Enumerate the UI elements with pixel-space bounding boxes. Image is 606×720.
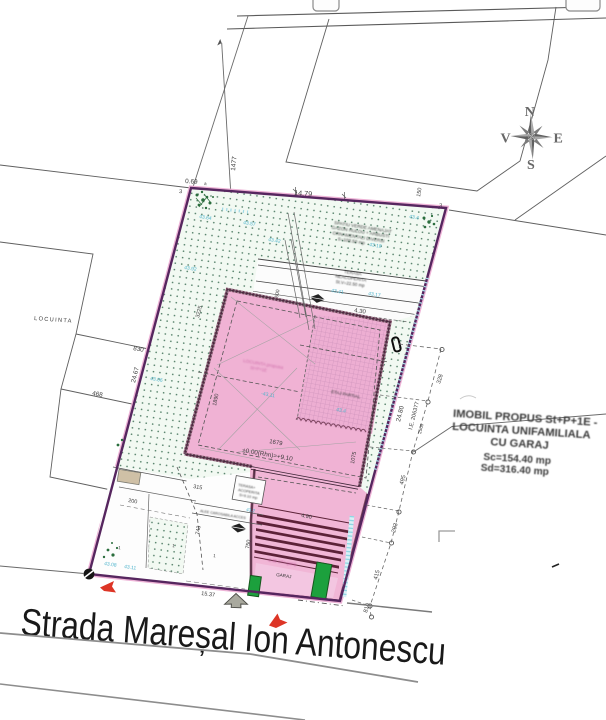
svg-text:a: a xyxy=(204,181,207,186)
svg-text:468: 468 xyxy=(92,390,104,399)
svg-text:E: E xyxy=(554,132,563,147)
svg-text:150: 150 xyxy=(416,187,424,197)
svg-text:CU GARAJ: CU GARAJ xyxy=(490,436,549,452)
svg-text:415: 415 xyxy=(373,570,381,581)
svg-text:3: 3 xyxy=(179,189,182,195)
svg-text:N: N xyxy=(525,105,535,120)
svg-text:24.80: 24.80 xyxy=(395,405,406,423)
svg-text:830: 830 xyxy=(133,345,145,354)
svg-text:0.69: 0.69 xyxy=(185,178,198,186)
svg-text:S: S xyxy=(527,158,535,173)
svg-text:328: 328 xyxy=(436,374,445,385)
svg-text:203: 203 xyxy=(391,523,399,534)
svg-text:2568: 2568 xyxy=(417,423,424,435)
svg-text:1477: 1477 xyxy=(230,156,239,171)
svg-text:LOCUINTA: LOCUINTA xyxy=(34,316,73,325)
svg-text:V: V xyxy=(501,132,511,147)
svg-text:495: 495 xyxy=(399,475,407,486)
svg-text:Strada Mareșal Ion Antonescu: Strada Mareșal Ion Antonescu xyxy=(19,601,447,674)
svg-text:15.37: 15.37 xyxy=(201,591,216,599)
